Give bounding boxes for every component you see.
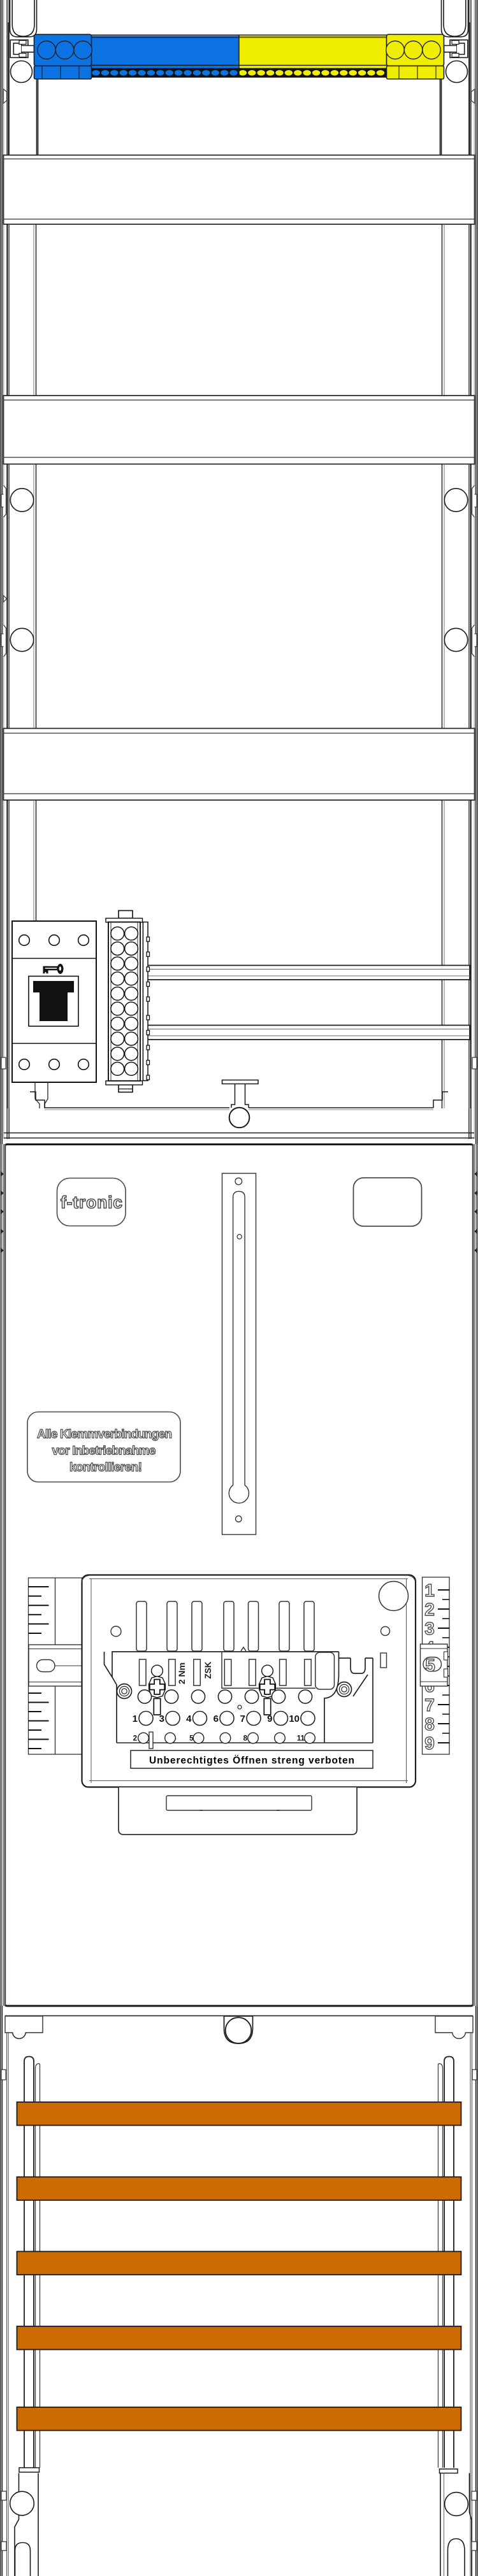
svg-text:9: 9: [424, 1733, 435, 1753]
svg-text:ZSK: ZSK: [203, 1661, 213, 1678]
svg-text:Alle Klemmverbindungen: Alle Klemmverbindungen: [37, 1428, 172, 1442]
svg-text:11: 11: [297, 1735, 305, 1743]
svg-text:vor Inbetriebnahme: vor Inbetriebnahme: [52, 1445, 156, 1458]
svg-text:5: 5: [425, 1656, 435, 1675]
svg-text:10: 10: [289, 1714, 300, 1724]
svg-text:9: 9: [267, 1714, 272, 1724]
svg-text:2 Nm: 2 Nm: [177, 1663, 187, 1684]
svg-text:8: 8: [243, 1735, 248, 1743]
svg-text:7: 7: [240, 1714, 245, 1724]
svg-text:2: 2: [133, 1735, 137, 1743]
svg-text:5: 5: [189, 1735, 194, 1743]
svg-text:f-tronic: f-tronic: [61, 1193, 122, 1212]
svg-text:7: 7: [424, 1695, 435, 1715]
svg-text:8: 8: [424, 1714, 435, 1734]
svg-text:3: 3: [159, 1714, 164, 1724]
svg-text:6: 6: [214, 1714, 219, 1724]
svg-text:4: 4: [186, 1714, 192, 1724]
svg-text:2: 2: [424, 1599, 435, 1619]
svg-text:1: 1: [133, 1714, 138, 1724]
svg-text:3: 3: [424, 1619, 435, 1638]
svg-text:kontrollieren!: kontrollieren!: [69, 1461, 142, 1475]
svg-text:1: 1: [424, 1580, 435, 1600]
svg-text:Unberechtigtes Öffnen streng v: Unberechtigtes Öffnen streng verboten: [149, 1756, 354, 1766]
